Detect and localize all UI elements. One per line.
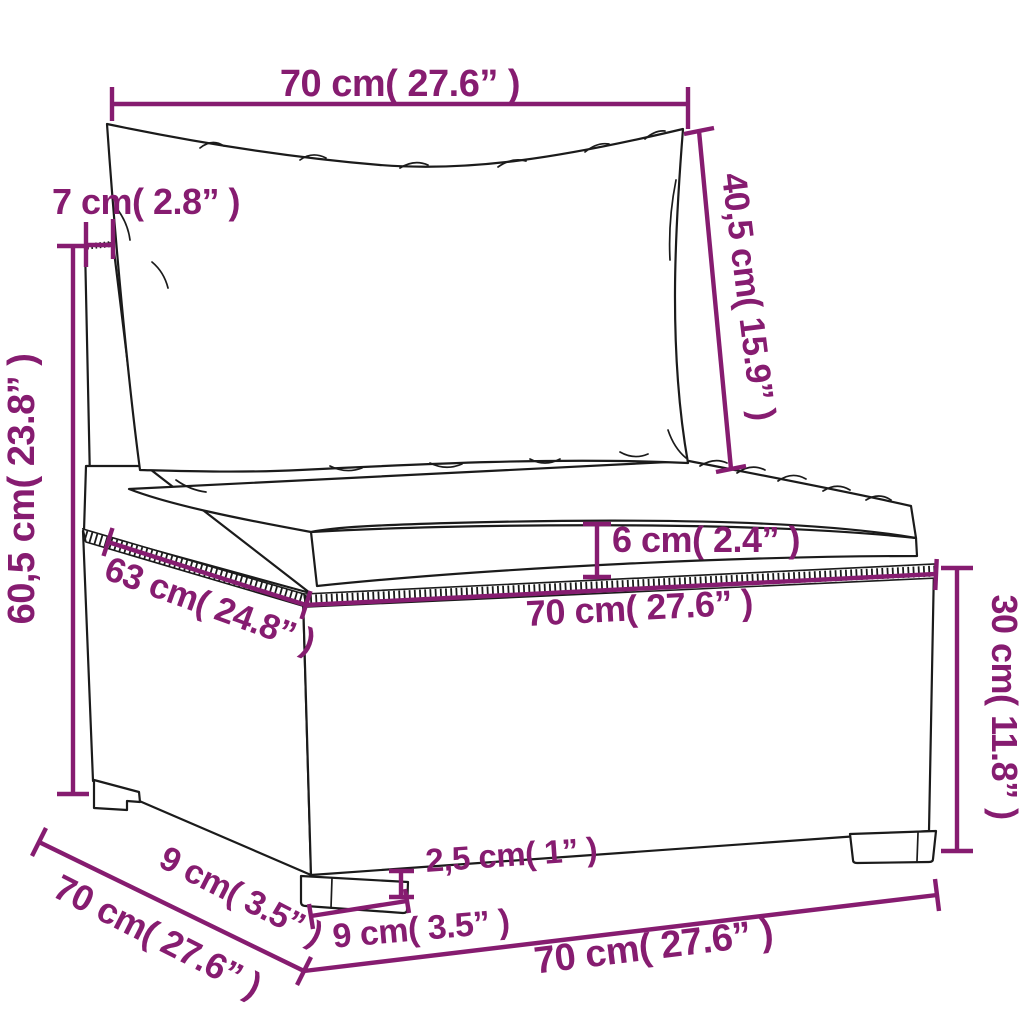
dimension-label-base-height: 30 cm( 11.8” ) xyxy=(984,594,1024,819)
front-right-leg-edge xyxy=(917,833,918,861)
front-left-leg-edge xyxy=(331,878,332,908)
dimension-label-back-cushion-width: 70 cm( 27.6” ) xyxy=(280,63,520,105)
dimension-label-backrest-thickness: 7 cm( 2.8” ) xyxy=(52,181,240,222)
product-dimension-diagram: 70 cm( 27.6” ) 7 cm( 2.8” ) 40,5 cm( 15.… xyxy=(0,0,1024,1024)
dimension-tick xyxy=(935,559,936,590)
dimension-label-seat-cushion-thickness: 6 cm( 2.4” ) xyxy=(612,519,800,560)
dimension-total-height: 60,5 cm( 23.8” ) xyxy=(1,246,89,794)
dimension-base-height: 30 cm( 11.8” ) xyxy=(941,568,1024,851)
front-right-leg xyxy=(850,831,936,863)
back-cushion xyxy=(107,124,688,492)
dimension-label-base-width: 70 cm( 27.6” ) xyxy=(532,912,775,983)
dimension-back-cushion-height: 40,5 cm( 15.9” ) xyxy=(684,128,783,472)
dimension-tick xyxy=(935,879,939,911)
dimension-back-cushion-width: 70 cm( 27.6” ) xyxy=(112,63,688,129)
dimension-seat-cushion-thickness: 6 cm( 2.4” ) xyxy=(583,519,800,577)
dimension-label-total-height: 60,5 cm( 23.8” ) xyxy=(1,354,43,625)
sofa-dimension-drawing: 70 cm( 27.6” ) 7 cm( 2.8” ) 40,5 cm( 15.… xyxy=(0,0,1024,1024)
back-cushion-pillow xyxy=(107,124,688,472)
